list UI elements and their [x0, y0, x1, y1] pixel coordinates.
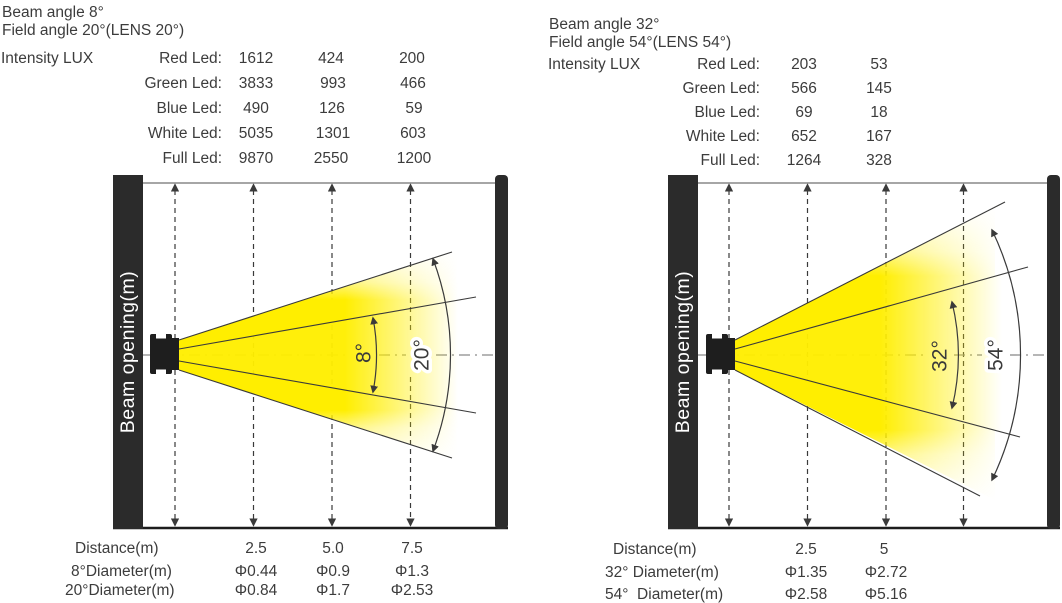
inner-angle-label: 32°: [929, 340, 952, 372]
diameter-value: Φ1.35: [785, 563, 828, 582]
right-wall: [495, 175, 508, 529]
distance-row-label: Distance(m): [613, 540, 697, 559]
distance-value: 5.0: [322, 539, 344, 558]
outer-angle-label: 20°: [411, 339, 434, 371]
diameter-value: Φ2.53: [391, 581, 434, 600]
inner-angle-label: 8°: [353, 343, 376, 363]
distance-value: 7.5: [401, 539, 423, 558]
diameter-value: Φ5.16: [865, 585, 908, 603]
right-wall: [1047, 175, 1060, 529]
distance-value: 5: [880, 540, 889, 559]
diameter-row-label: 54° Diameter(m): [605, 585, 723, 603]
diameter-row-label: 8°Diameter(m): [71, 562, 172, 581]
fixture-icon: [150, 334, 179, 375]
diameter-value: Φ2.58: [785, 585, 828, 603]
diameter-row-label: 32° Diameter(m): [605, 563, 719, 582]
distance-value: 2.5: [795, 540, 817, 559]
diameter-value: Φ1.3: [395, 562, 429, 581]
beam-opening-axis-label: Beam opening(m): [117, 271, 139, 434]
outer-angle-label: 54°: [985, 339, 1008, 371]
diameter-value: Φ2.72: [865, 563, 908, 582]
diameter-value: Φ0.9: [316, 562, 350, 581]
diameter-value: Φ0.44: [235, 562, 278, 581]
diameter-row-label: 20°Diameter(m): [65, 581, 175, 600]
distance-value: 2.5: [245, 539, 267, 558]
beam-cone: [735, 207, 1010, 500]
beam-opening-axis-label: Beam opening(m): [672, 271, 694, 434]
beam-diagram-32-54: 32° 54° Beam opening(m): [540, 0, 1062, 603]
distance-row-label: Distance(m): [75, 539, 159, 558]
diameter-value: Φ1.7: [316, 581, 350, 600]
panel-beam-8: Beam angle 8° Field angle 20°(LENS 20°) …: [0, 0, 530, 603]
panel-beam-32: Beam angle 32° Field angle 54°(LENS 54°)…: [540, 0, 1062, 603]
fixture-icon: [706, 334, 735, 375]
photometric-sheet: Beam angle 8° Field angle 20°(LENS 20°) …: [0, 0, 1062, 603]
diameter-value: Φ0.84: [235, 581, 278, 600]
beam-diagram-8-20: 8° 20° Beam opening(m): [0, 0, 530, 603]
